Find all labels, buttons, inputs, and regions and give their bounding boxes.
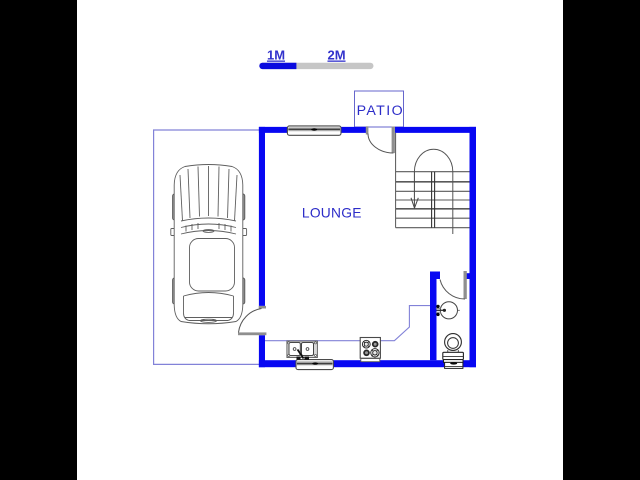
svg-text:1M: 1M	[267, 48, 285, 63]
svg-text:PATIO: PATIO	[357, 103, 404, 119]
svg-text:LOUNGE: LOUNGE	[302, 205, 362, 220]
svg-text:2M: 2M	[327, 48, 345, 63]
